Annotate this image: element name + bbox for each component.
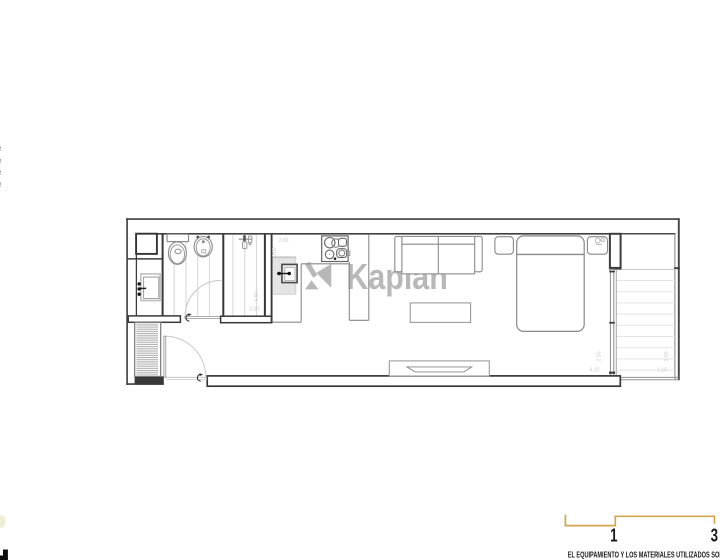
svg-text:1.10: 1.10 bbox=[657, 367, 667, 373]
svg-text:2: 2 bbox=[0, 147, 2, 153]
svg-text:3: 3 bbox=[711, 526, 718, 547]
svg-text:0.60: 0.60 bbox=[272, 247, 278, 257]
svg-text:2.90: 2.90 bbox=[664, 351, 670, 361]
svg-text:2.90: 2.90 bbox=[597, 351, 603, 361]
svg-text:1: 1 bbox=[610, 526, 617, 547]
svg-text:EL EQUIPAMIENTO Y LOS MATERIAL: EL EQUIPAMIENTO Y LOS MATERIALES UTILIZA… bbox=[568, 552, 720, 560]
svg-text:1.50: 1.50 bbox=[254, 292, 260, 302]
svg-text:2: 2 bbox=[0, 171, 2, 177]
svg-text:9.15: 9.15 bbox=[589, 368, 599, 374]
svg-text:2.00: 2.00 bbox=[279, 238, 289, 244]
svg-text:2: 2 bbox=[0, 159, 2, 165]
svg-text:2: 2 bbox=[0, 183, 2, 189]
svg-text:2.00: 2.00 bbox=[249, 307, 259, 313]
